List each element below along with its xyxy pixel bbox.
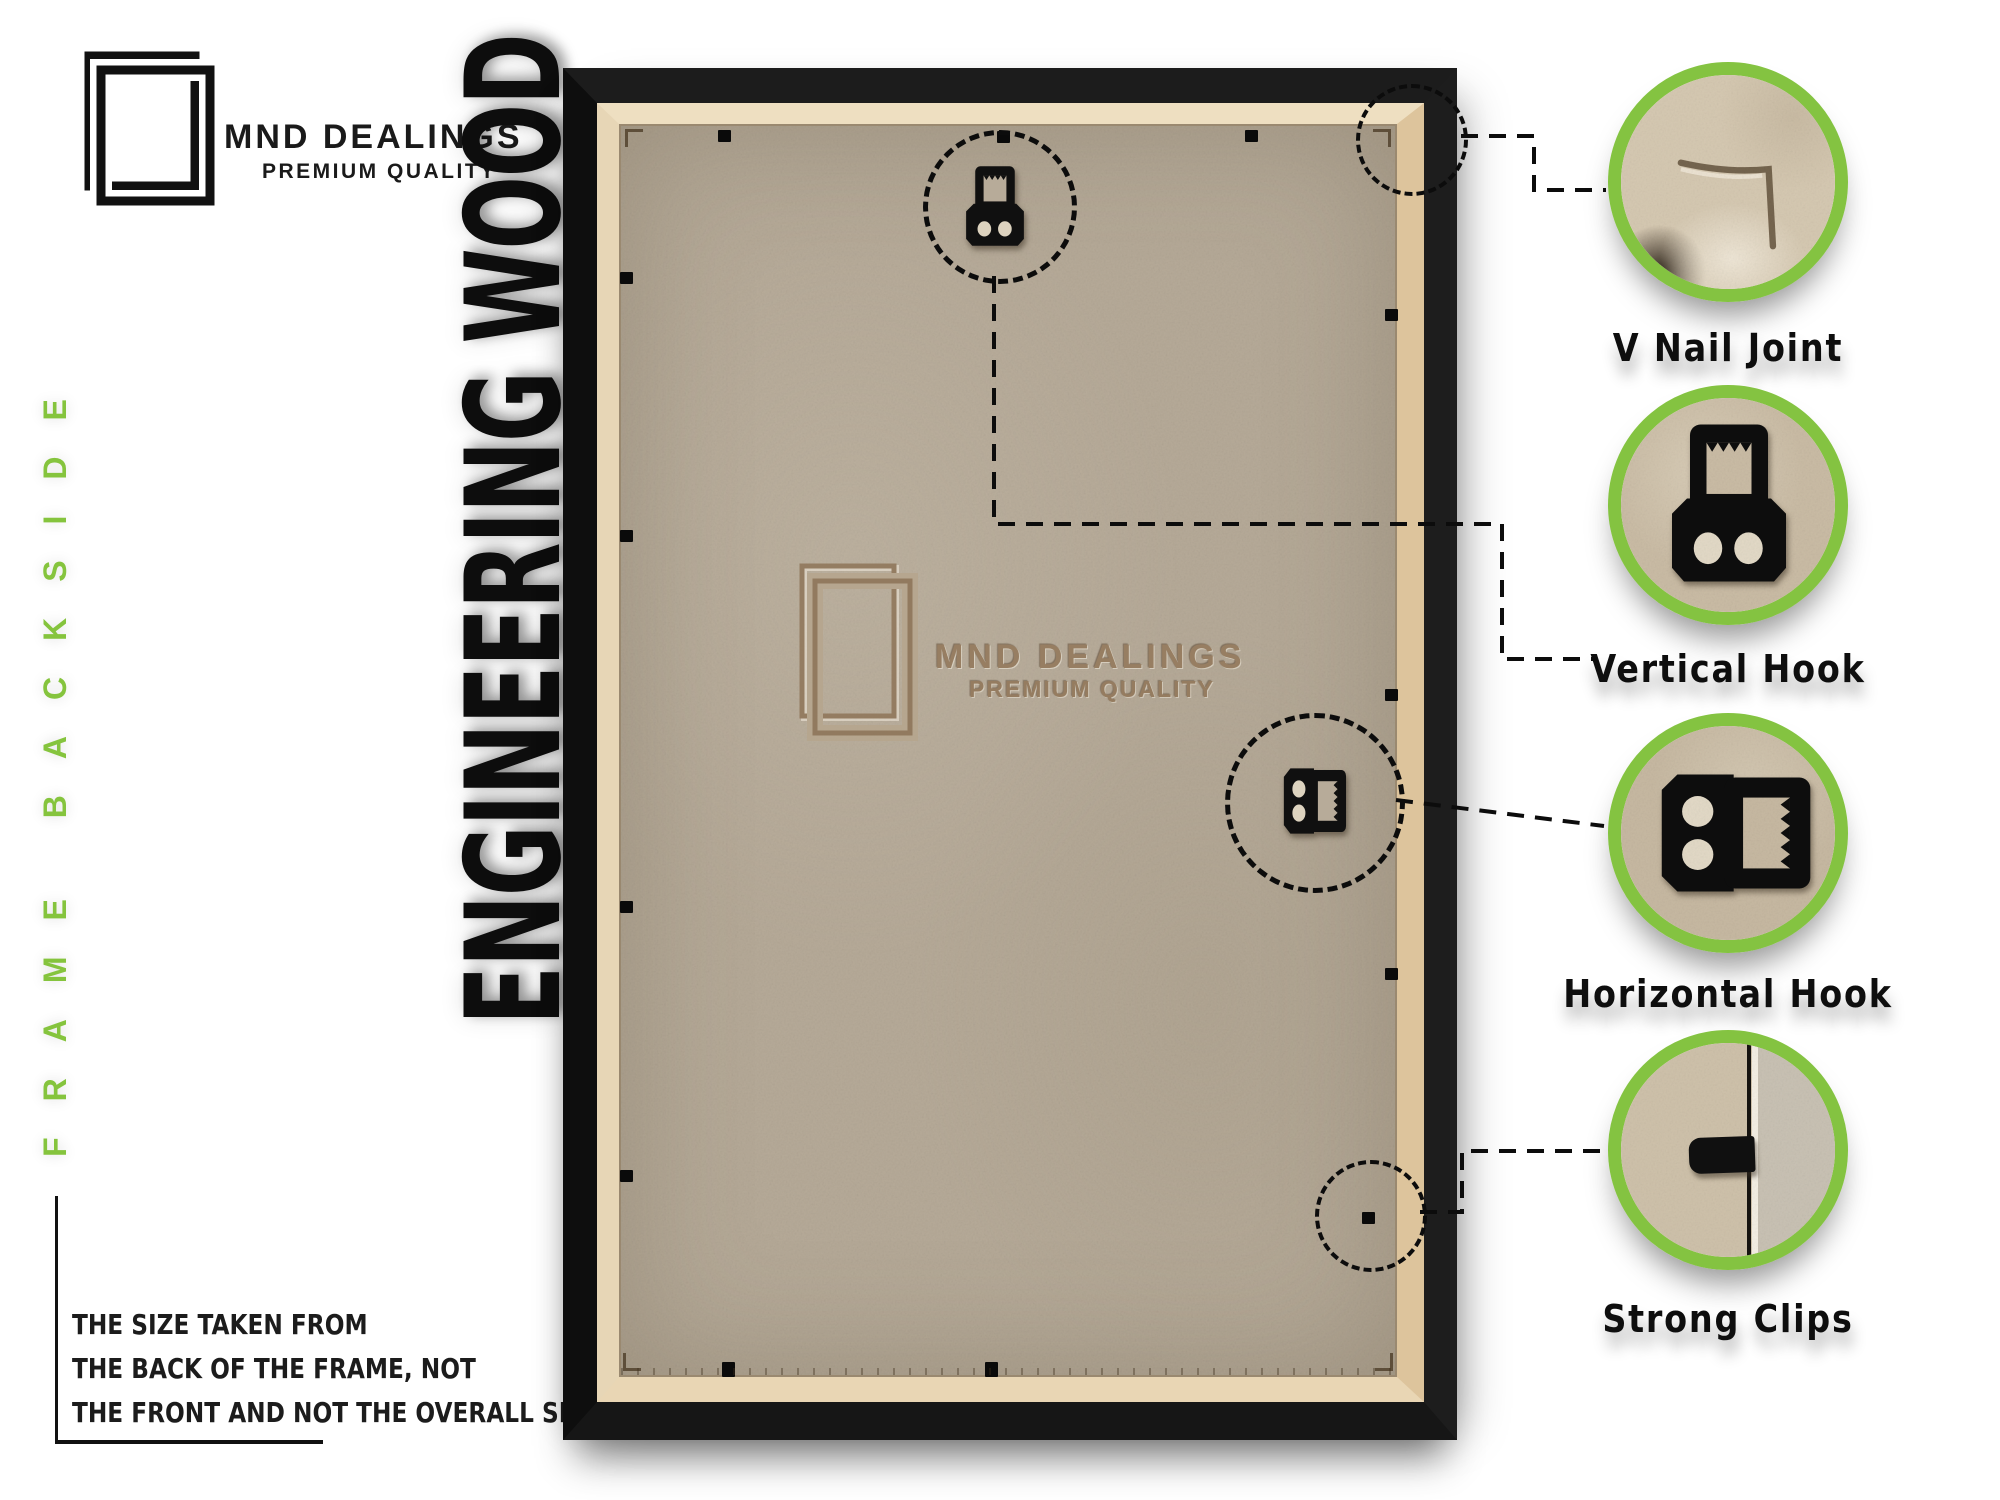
strong-clip-highlight-circle: [1315, 1160, 1427, 1272]
horizontal-hook-callout: [1608, 713, 1848, 953]
strong-clips-photo: [1621, 1043, 1835, 1257]
horizontal-hook-icon: [1643, 756, 1815, 910]
clip-left-3: [620, 901, 633, 913]
vertical-hook-icon: [1654, 420, 1804, 586]
horizontal-hook-photo: [1621, 726, 1835, 940]
engineering-wood-title: ENGINEERING WOOD: [437, 220, 557, 1280]
clip-top-3: [1245, 130, 1258, 142]
vertical-hook-highlight-circle: [923, 130, 1077, 284]
clip-left-2: [620, 530, 633, 542]
note-line-3: THE FRONT AND NOT THE OVERALL SIZE.: [72, 1396, 609, 1429]
vertical-hook-photo: [1621, 398, 1835, 612]
v-nail-mark-top-left: [625, 129, 643, 147]
horizontal-hook-highlight-circle: [1225, 713, 1405, 893]
watermark-tagline: PREMIUM QUALITY: [969, 676, 1215, 703]
clip-left-4: [620, 1170, 633, 1182]
frame-backside-poster: MND DEALINGS PREMIUM QUALITY FRAME BACKS…: [0, 0, 2000, 1500]
vertical-hook-callout: [1608, 385, 1848, 625]
brand-logo-icon: [68, 40, 228, 215]
clip-right-3: [1385, 968, 1398, 980]
note-underline: [55, 1440, 323, 1444]
strong-clips-callout: [1608, 1030, 1848, 1270]
clip-top-1: [718, 130, 731, 142]
note-line-2: THE BACK OF THE FRAME, NOT: [72, 1352, 476, 1385]
corner-groove-icon: [1621, 75, 1835, 289]
v-nail-joint-callout: [1608, 62, 1848, 302]
clip-left-1: [620, 272, 633, 284]
vertical-hook-label: Vertical Hook: [1543, 647, 1913, 691]
bottom-seam-ticks: [621, 1368, 1395, 1375]
frame-backside-label: FRAME BACKSIDE: [37, 310, 77, 1210]
horizontal-hook-label: Horizontal Hook: [1543, 972, 1913, 1016]
clip-right-1: [1385, 309, 1398, 321]
watermark-logo-icon: [793, 559, 933, 759]
frame-edge-region: [1754, 1043, 1835, 1257]
v-nail-joint-photo: [1621, 75, 1835, 289]
clip-right-2: [1385, 689, 1398, 701]
corner-joint-highlight-circle: [1356, 84, 1468, 196]
v-nail-joint-label: V Nail Joint: [1543, 326, 1913, 370]
strong-clips-label: Strong Clips: [1543, 1297, 1913, 1341]
strong-clip-icon: [1689, 1136, 1757, 1175]
watermark-name: MND DEALINGS: [935, 638, 1246, 677]
note-vertical-line: [55, 1196, 58, 1443]
note-line-1: THE SIZE TAKEN FROM: [72, 1308, 368, 1341]
